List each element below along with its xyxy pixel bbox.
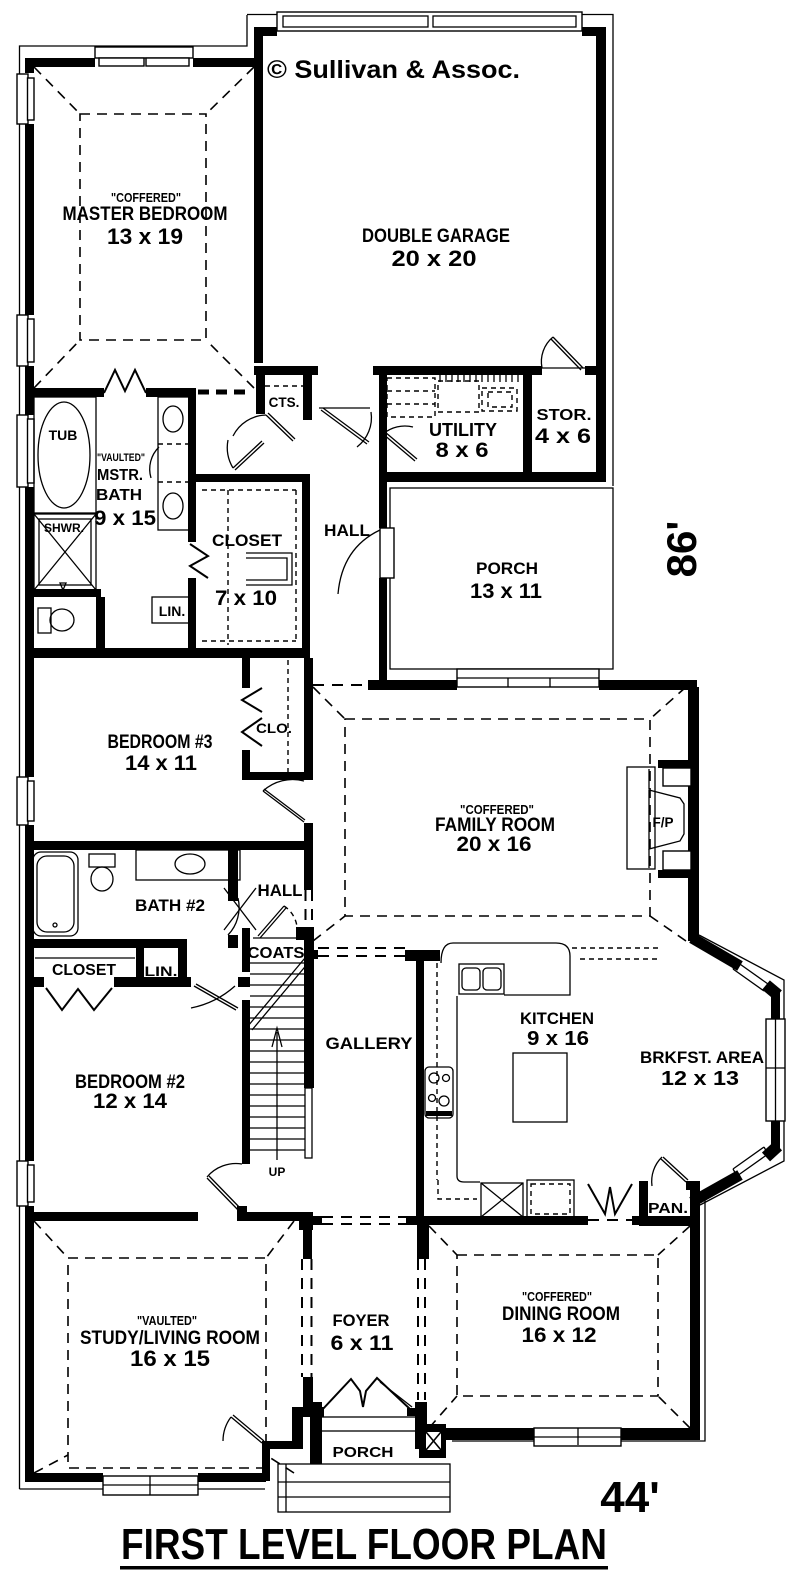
svg-text:"COFFERED": "COFFERED" (111, 191, 181, 205)
svg-text:MSTR.: MSTR. (97, 467, 143, 484)
svg-text:MASTER BEDROOM: MASTER BEDROOM (63, 204, 228, 225)
svg-text:16 x 12: 16 x 12 (522, 1324, 597, 1347)
svg-text:CLOSET: CLOSET (52, 962, 116, 979)
svg-text:DINING ROOM: DINING ROOM (502, 1304, 620, 1325)
svg-text:TUB: TUB (49, 427, 78, 443)
svg-text:F/P: F/P (652, 815, 673, 830)
svg-text:14 x 11: 14 x 11 (125, 752, 197, 775)
svg-text:DOUBLE GARAGE: DOUBLE GARAGE (362, 226, 510, 247)
svg-text:20 x 16: 20 x 16 (457, 833, 532, 856)
svg-text:HALL: HALL (258, 881, 303, 900)
svg-text:6 x 11: 6 x 11 (331, 1332, 394, 1355)
svg-text:SHWR.: SHWR. (44, 521, 84, 535)
svg-text:BATH #2: BATH #2 (135, 896, 205, 915)
svg-text:"COFFERED": "COFFERED" (522, 1290, 592, 1304)
svg-text:9 x 16: 9 x 16 (527, 1028, 589, 1050)
svg-text:BATH: BATH (96, 487, 142, 504)
svg-text:HALL: HALL (324, 521, 370, 540)
svg-text:COATS: COATS (248, 945, 305, 962)
svg-text:86': 86' (658, 521, 705, 578)
svg-text:BEDROOM #3: BEDROOM #3 (108, 732, 213, 753)
svg-text:FOYER: FOYER (333, 1311, 390, 1330)
svg-text:16 x 15: 16 x 15 (130, 1346, 210, 1371)
svg-text:4 x 6: 4 x 6 (535, 425, 591, 448)
svg-text:"VAULTED": "VAULTED" (137, 1314, 197, 1328)
svg-text:7 x 10: 7 x 10 (215, 587, 277, 610)
svg-text:KITCHEN: KITCHEN (520, 1009, 594, 1028)
svg-text:BRKFST. AREA: BRKFST. AREA (640, 1048, 764, 1067)
svg-text:"VAULTED": "VAULTED" (97, 452, 145, 464)
svg-text:© Sullivan & Assoc.: © Sullivan & Assoc. (267, 56, 520, 84)
svg-text:44': 44' (600, 1473, 659, 1522)
svg-text:UP: UP (269, 1165, 286, 1179)
svg-text:GALLERY: GALLERY (326, 1034, 414, 1053)
svg-text:PORCH: PORCH (333, 1444, 394, 1461)
svg-text:20 x 20: 20 x 20 (392, 246, 477, 271)
svg-text:12 x 14: 12 x 14 (93, 1090, 167, 1113)
svg-text:CTS.: CTS. (269, 395, 300, 410)
svg-text:UTILITY: UTILITY (429, 420, 497, 440)
svg-text:LIN.: LIN. (145, 963, 178, 979)
svg-text:FIRST LEVEL FLOOR PLAN: FIRST LEVEL FLOOR PLAN (121, 1520, 607, 1569)
svg-text:9 x 15: 9 x 15 (94, 507, 156, 530)
svg-text:13 x 19: 13 x 19 (107, 224, 183, 249)
svg-text:PORCH: PORCH (476, 559, 538, 578)
svg-text:CLO.: CLO. (256, 720, 292, 736)
svg-text:12 x 13: 12 x 13 (661, 1068, 739, 1090)
svg-text:CLOSET: CLOSET (212, 531, 283, 550)
svg-text:STOR.: STOR. (537, 407, 592, 424)
svg-text:13 x 11: 13 x 11 (470, 580, 542, 603)
svg-text:8 x 6: 8 x 6 (436, 439, 489, 462)
svg-text:LIN.: LIN. (159, 603, 185, 619)
svg-text:PAN.: PAN. (648, 1200, 688, 1217)
